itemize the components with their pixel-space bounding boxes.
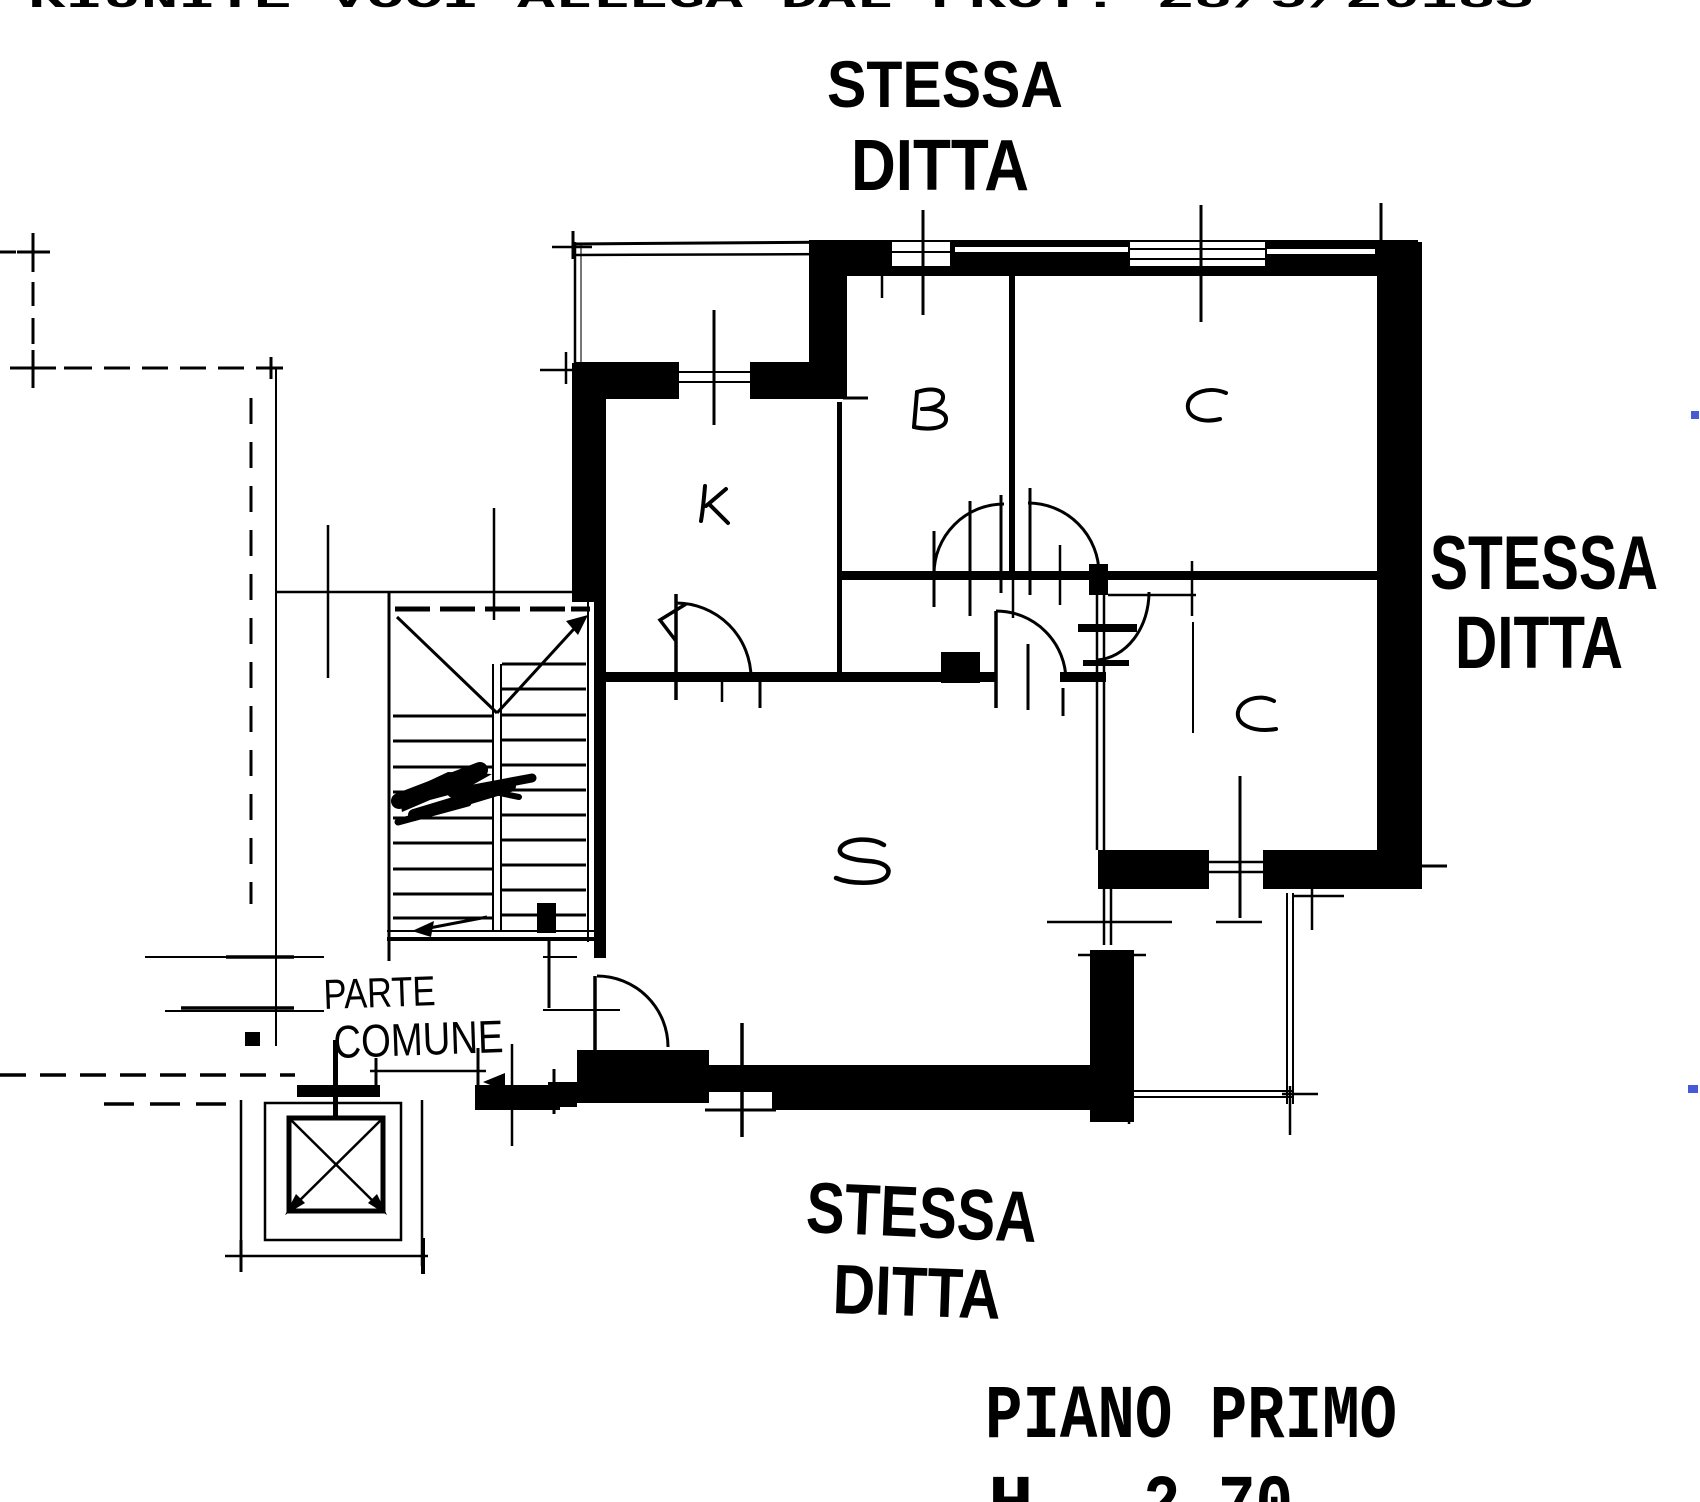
- svg-text:RIUNITE VOCI ALLEGA DAL PROT.: RIUNITE VOCI ALLEGA DAL PROT. 28/5/2018S: [28, 0, 1533, 18]
- svg-text:2.70: 2.70: [1143, 1464, 1293, 1502]
- svg-text:DITTA: DITTA: [851, 126, 1029, 206]
- svg-text:PIANO PRIMO: PIANO PRIMO: [985, 1374, 1397, 1460]
- svg-text:DITTA: DITTA: [832, 1250, 1003, 1334]
- svg-text:DITTA: DITTA: [1455, 601, 1623, 684]
- svg-text:PARTE: PARTE: [323, 967, 437, 1018]
- svg-text:STESSA: STESSA: [805, 1168, 1039, 1258]
- svg-text:H: H: [988, 1464, 1034, 1502]
- svg-text:STESSA: STESSA: [827, 47, 1063, 121]
- svg-text:STESSA: STESSA: [1430, 521, 1658, 606]
